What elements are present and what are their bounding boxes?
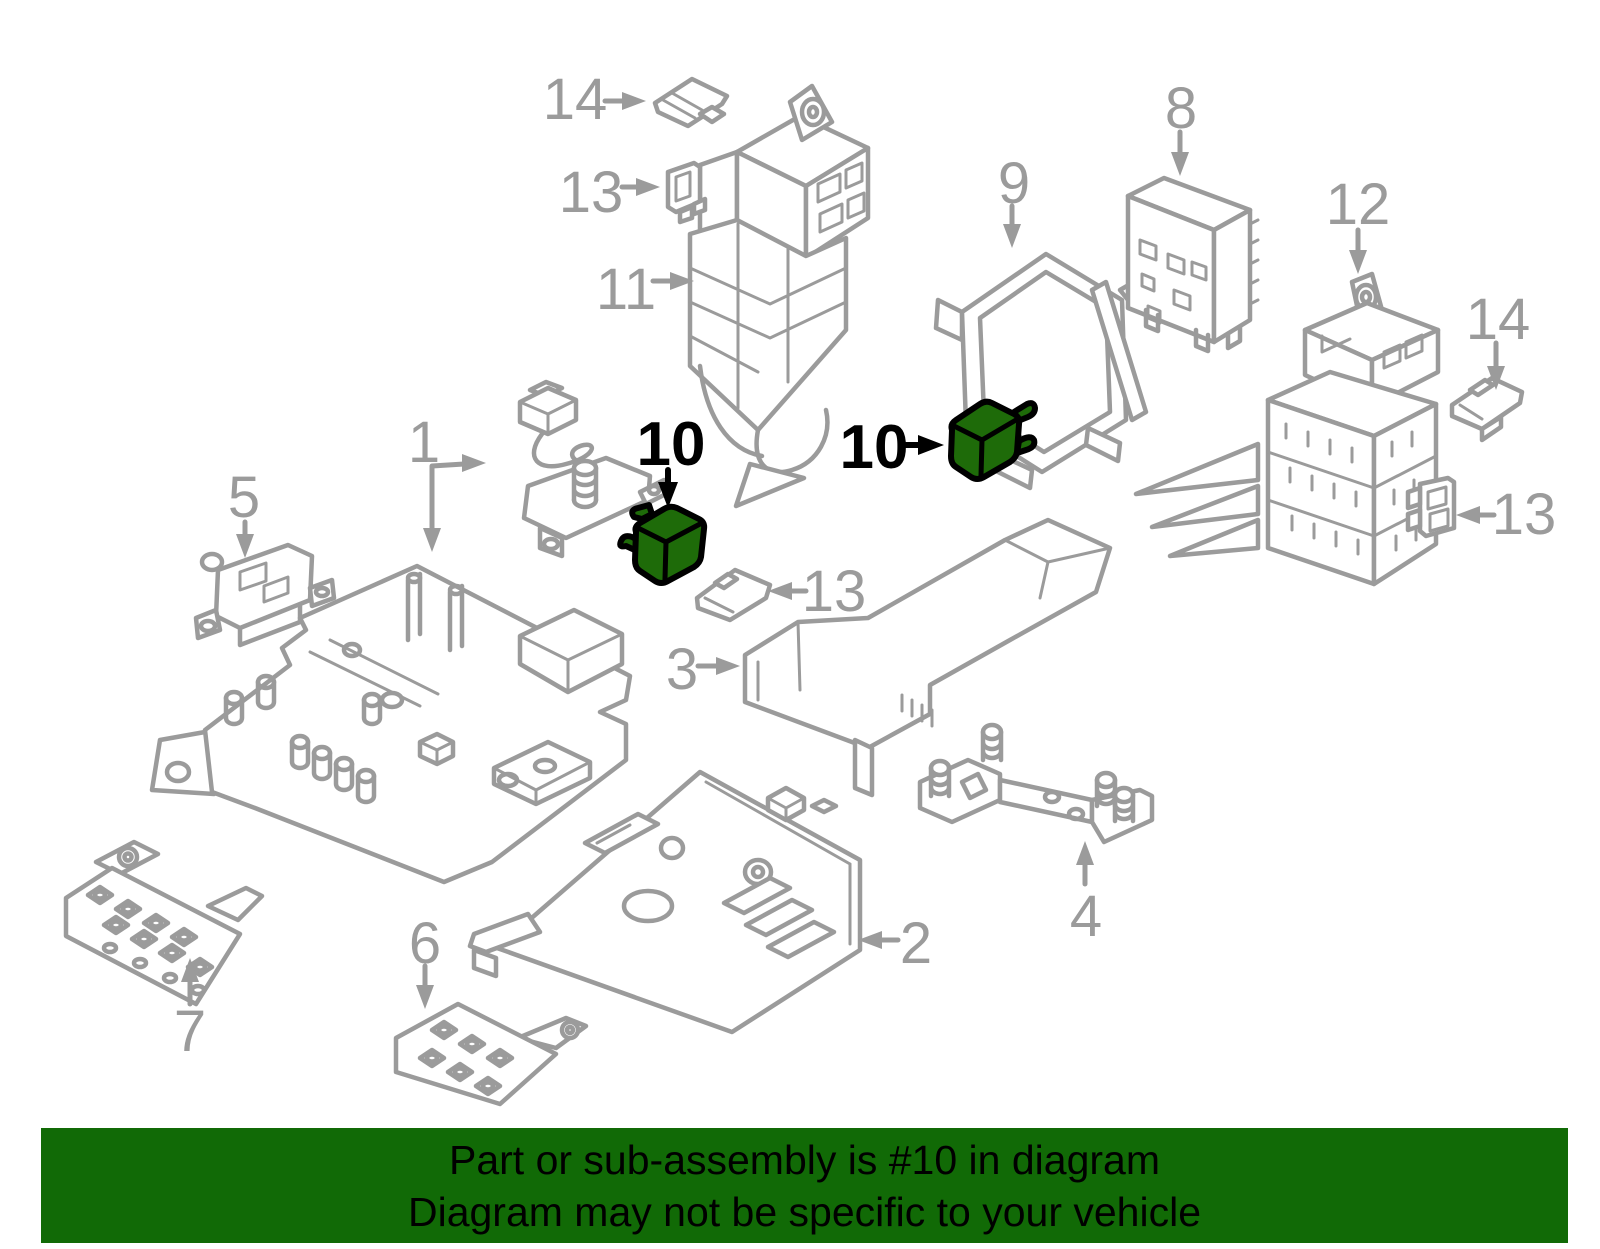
highlight-banner: Part or sub-assembly is #10 in diagram D… [41,1128,1568,1243]
part-drawing-13-middle-fuse [697,570,770,620]
callout-label-2: 2 [900,911,932,976]
highlighted-part-10-left-relay [620,505,704,583]
callout-label-1: 1 [408,410,440,475]
callout-label-11: 11 [596,257,656,322]
callout-label-9: 9 [998,151,1030,216]
part-drawing-6-fusible-link [396,1004,586,1104]
part-drawing-8-control-unit [1128,178,1258,351]
parts-diagram-svg: 14 13 11 9 8 12 14 13 10 10 13 3 1 5 7 6… [0,0,1600,1249]
callout-arrow-4 [1076,841,1094,884]
part-drawing-14-top-fuse [655,79,727,126]
callout-label-12: 12 [1326,172,1391,237]
callout-label-3: 3 [666,637,698,702]
callout-arrow-13-middle [768,582,806,600]
callout-label-7: 7 [174,999,206,1064]
part-drawing-4-stud-bracket [920,725,1152,842]
callout-label-10-right: 10 [840,413,909,482]
callout-label-14-right: 14 [1466,287,1531,352]
callout-arrow-13-top [622,178,660,196]
callout-label-4: 4 [1070,884,1102,949]
banner-line-2: Diagram may not be specific to your vehi… [41,1186,1568,1238]
part-drawing-7-fusible-link-bank [66,842,262,1004]
banner-line-1: Part or sub-assembly is #10 in diagram [41,1134,1568,1186]
callout-arrow-3 [698,657,740,675]
callout-arrow-10-right [904,435,944,455]
part-drawing-14-right-fuse [1452,378,1522,440]
callout-arrow-2 [858,931,898,949]
callout-arrow-13-right [1456,506,1494,524]
callout-label-8: 8 [1165,76,1197,141]
callout-label-13-right: 13 [1492,482,1557,547]
part-drawing-13-top-fuse [668,163,705,222]
callout-label-13-middle: 13 [802,559,867,624]
callout-label-5: 5 [228,465,260,530]
part-drawing-3-duct [745,520,1110,795]
callout-label-14-top: 14 [543,67,608,132]
callout-label-10-left: 10 [637,410,706,479]
parts-diagram-page: 14 13 11 9 8 12 14 13 10 10 13 3 1 5 7 6… [0,0,1600,1249]
callout-label-13-top: 13 [559,160,624,225]
callout-label-6: 6 [409,911,441,976]
callout-arrow-14-top [605,92,646,110]
